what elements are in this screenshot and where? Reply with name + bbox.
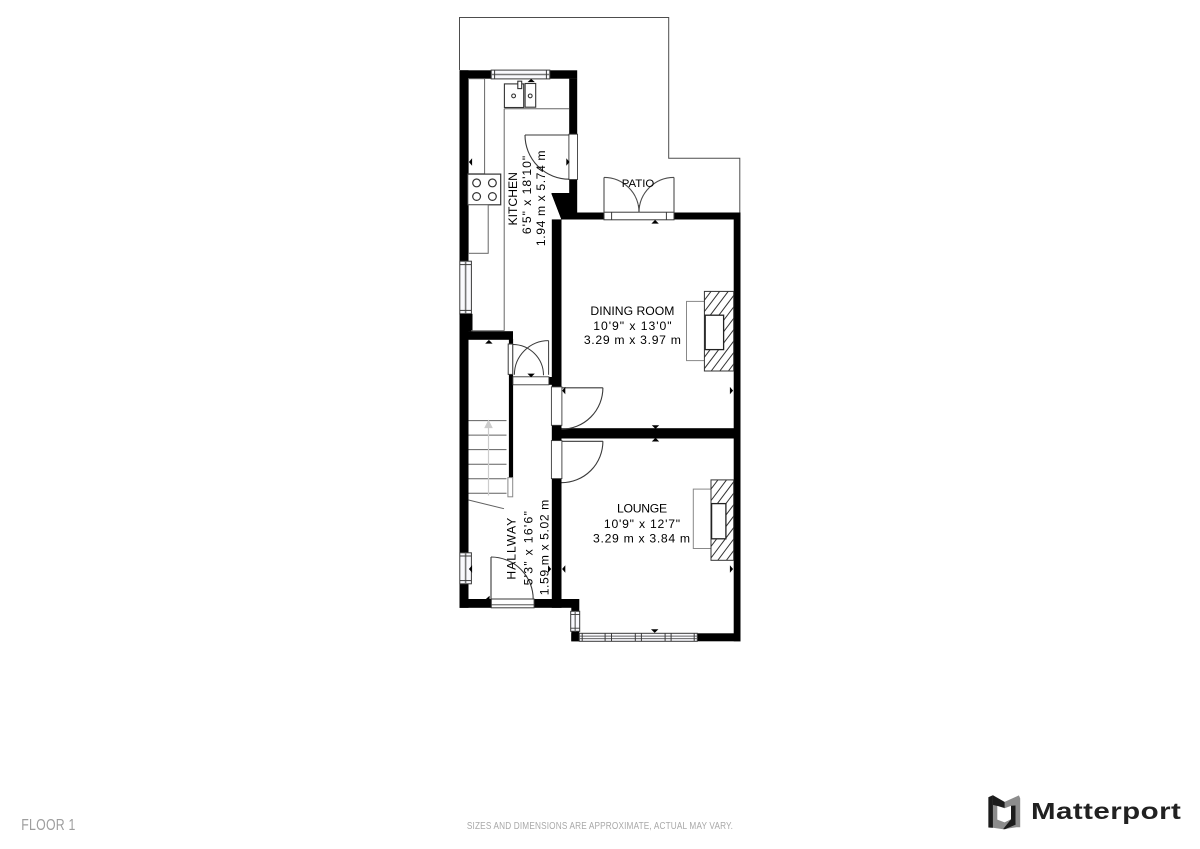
svg-text:FLOOR 1: FLOOR 1 <box>21 817 75 835</box>
svg-text:10'9" x 13'0": 10'9" x 13'0" <box>593 319 672 333</box>
svg-text:1.94 m x 5.74 m: 1.94 m x 5.74 m <box>534 150 548 246</box>
svg-text:6'5" x 18'10": 6'5" x 18'10" <box>520 155 534 234</box>
svg-text:PATIO: PATIO <box>622 178 655 190</box>
svg-text:10'9" x 12'7": 10'9" x 12'7" <box>604 517 681 531</box>
svg-text:5'3" x 16'6": 5'3" x 16'6" <box>522 510 536 586</box>
svg-text:HALLWAY: HALLWAY <box>505 517 519 580</box>
svg-text:1.59 m x 5.02 m: 1.59 m x 5.02 m <box>538 499 552 595</box>
svg-text:KITCHEN: KITCHEN <box>506 172 520 226</box>
svg-text:SIZES AND DIMENSIONS ARE APPRO: SIZES AND DIMENSIONS ARE APPROXIMATE, AC… <box>467 820 733 831</box>
svg-text:3.29 m x 3.84 m: 3.29 m x 3.84 m <box>593 531 691 545</box>
svg-text:3.29 m x 3.97 m: 3.29 m x 3.97 m <box>584 333 682 347</box>
svg-text:DINING ROOM: DINING ROOM <box>590 304 674 318</box>
svg-text:LOUNGE: LOUNGE <box>617 502 667 516</box>
svg-text:Matterport: Matterport <box>1031 798 1181 824</box>
